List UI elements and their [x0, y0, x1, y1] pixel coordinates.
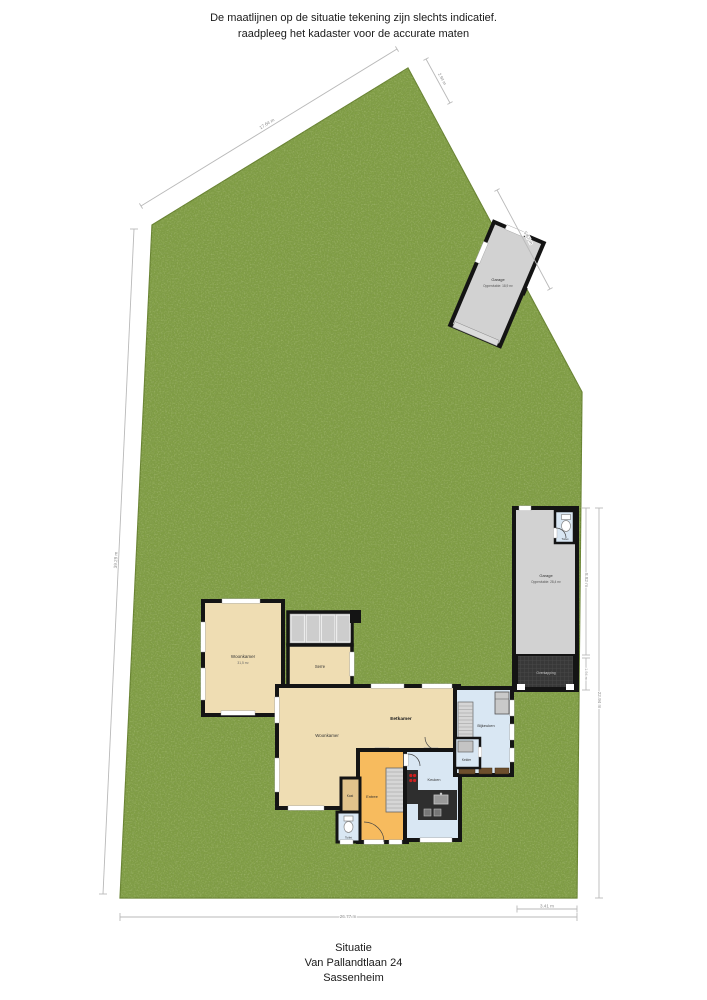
keuken-label: Keuken: [428, 778, 441, 782]
oven: [434, 809, 441, 816]
eetkamer-label: Eetkamer: [390, 716, 412, 722]
garage-top-label: Garage: [491, 277, 505, 282]
plan-city: Sassenheim: [0, 971, 707, 986]
front-door: [364, 840, 384, 845]
freezer: [458, 741, 473, 752]
woonkamer-1-sublabel: 31,5 m²: [237, 661, 249, 665]
plan-address: Van Pallandtlaan 24: [0, 956, 707, 971]
toilet-icon: [562, 515, 571, 532]
canopy-label: Overkapping: [536, 671, 555, 675]
fridge: [495, 692, 509, 714]
dim-canopy-height: 1.94 m: [584, 668, 588, 680]
kelder-label: Kelder: [462, 758, 472, 762]
room-keuken: Keuken: [404, 750, 460, 842]
plan-title: Situatie: [0, 941, 707, 956]
room-toilet: Toilet: [337, 812, 360, 844]
dim-apex: 2.94 m: [437, 72, 448, 86]
bijkeuken-label: Bijkeuken: [477, 723, 494, 728]
woonkamer-2-label: Woonkamer: [315, 733, 339, 738]
sink: [434, 795, 448, 804]
dim-left: 39.29 m: [113, 551, 119, 568]
toilet-icon: [344, 816, 353, 833]
garage-right-label: Garage: [539, 573, 553, 578]
stairs-bijkeuken: [458, 702, 473, 740]
dim-right-total: 22.94 m: [597, 692, 602, 709]
room-kelder: Kelder: [455, 738, 482, 768]
plan-title-block: Situatie Van Pallandtlaan 24 Sassenheim: [0, 941, 707, 986]
room-woonkamer-1: Woonkamer 31,5 m²: [201, 599, 283, 715]
garage-right-sublabel: Oppervlakte: 28,4 m²: [531, 580, 561, 584]
serre-label: Serre: [315, 664, 326, 669]
site-plan-canvas: Garage Oppervlakte: 18,9 m² Garage Opper…: [0, 0, 707, 1000]
garage-toilet-label: Toilet: [561, 537, 568, 541]
room-kast: Kast: [341, 778, 360, 812]
garage-top-sublabel: Oppervlakte: 18,9 m²: [483, 284, 513, 288]
entree-label: Entree: [366, 794, 379, 799]
woonkamer-1-label: Woonkamer: [231, 654, 256, 659]
oven: [424, 809, 431, 816]
dim-bottom-total: 26.77 m: [340, 914, 357, 919]
room-serre: Serre: [288, 610, 361, 688]
garage-right: Garage Oppervlakte: 28,4 m² Toilet Overk…: [514, 506, 577, 690]
dim-garage-right-height: 8.82 m: [584, 573, 589, 587]
toilet-label: Toilet: [345, 836, 352, 840]
room-entree: Entree: [358, 750, 407, 844]
situatie-page: De maatlijnen op de situatie tekening zi…: [0, 0, 707, 1000]
kast-label: Kast: [347, 794, 353, 798]
dim-bottom-right: 3.41 m: [540, 904, 554, 909]
